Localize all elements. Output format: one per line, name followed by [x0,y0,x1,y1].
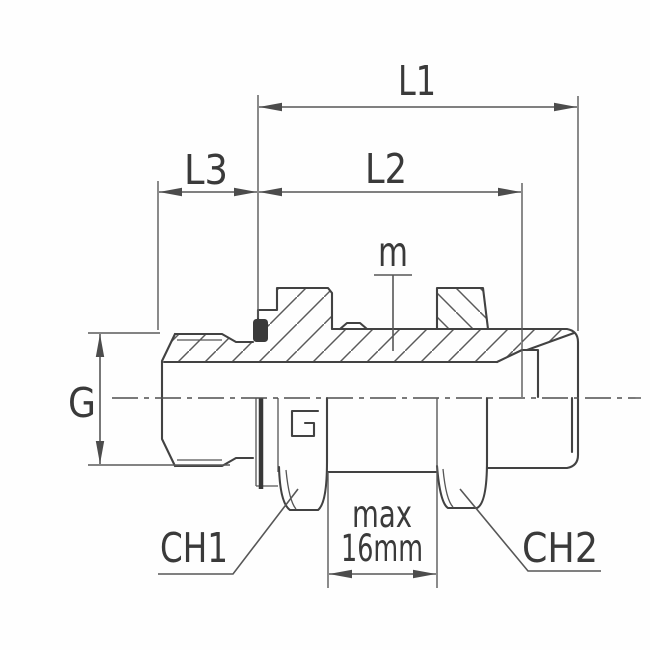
dim-label-g: G [68,379,96,427]
dim-label-l1: L1 [398,57,436,105]
dim-label-l2: L2 [365,145,407,193]
dim-label-l3: L3 [184,146,228,194]
dim-label-ch2: CH2 [522,524,598,572]
ch1-nut [279,398,327,510]
dim-label-m: m [378,228,408,276]
note-16mm: 16mm [341,527,423,570]
technical-drawing: L1 L3 L2 m G CH1 CH2 max 16mm [0,0,650,650]
fitting-outline [162,288,578,510]
seal-ring [253,319,268,342]
section-hatching [166,289,573,362]
retaining-ring-symbol [292,411,318,436]
dim-label-ch1: CH1 [160,524,228,572]
hatch-right-section [522,330,573,350]
hatch-locknut-section [437,289,488,329]
hatch-thread-section [166,335,258,362]
ch2-nut-facet [443,469,453,507]
drawing-page: L1 L3 L2 m G CH1 CH2 max 16mm [0,0,650,650]
